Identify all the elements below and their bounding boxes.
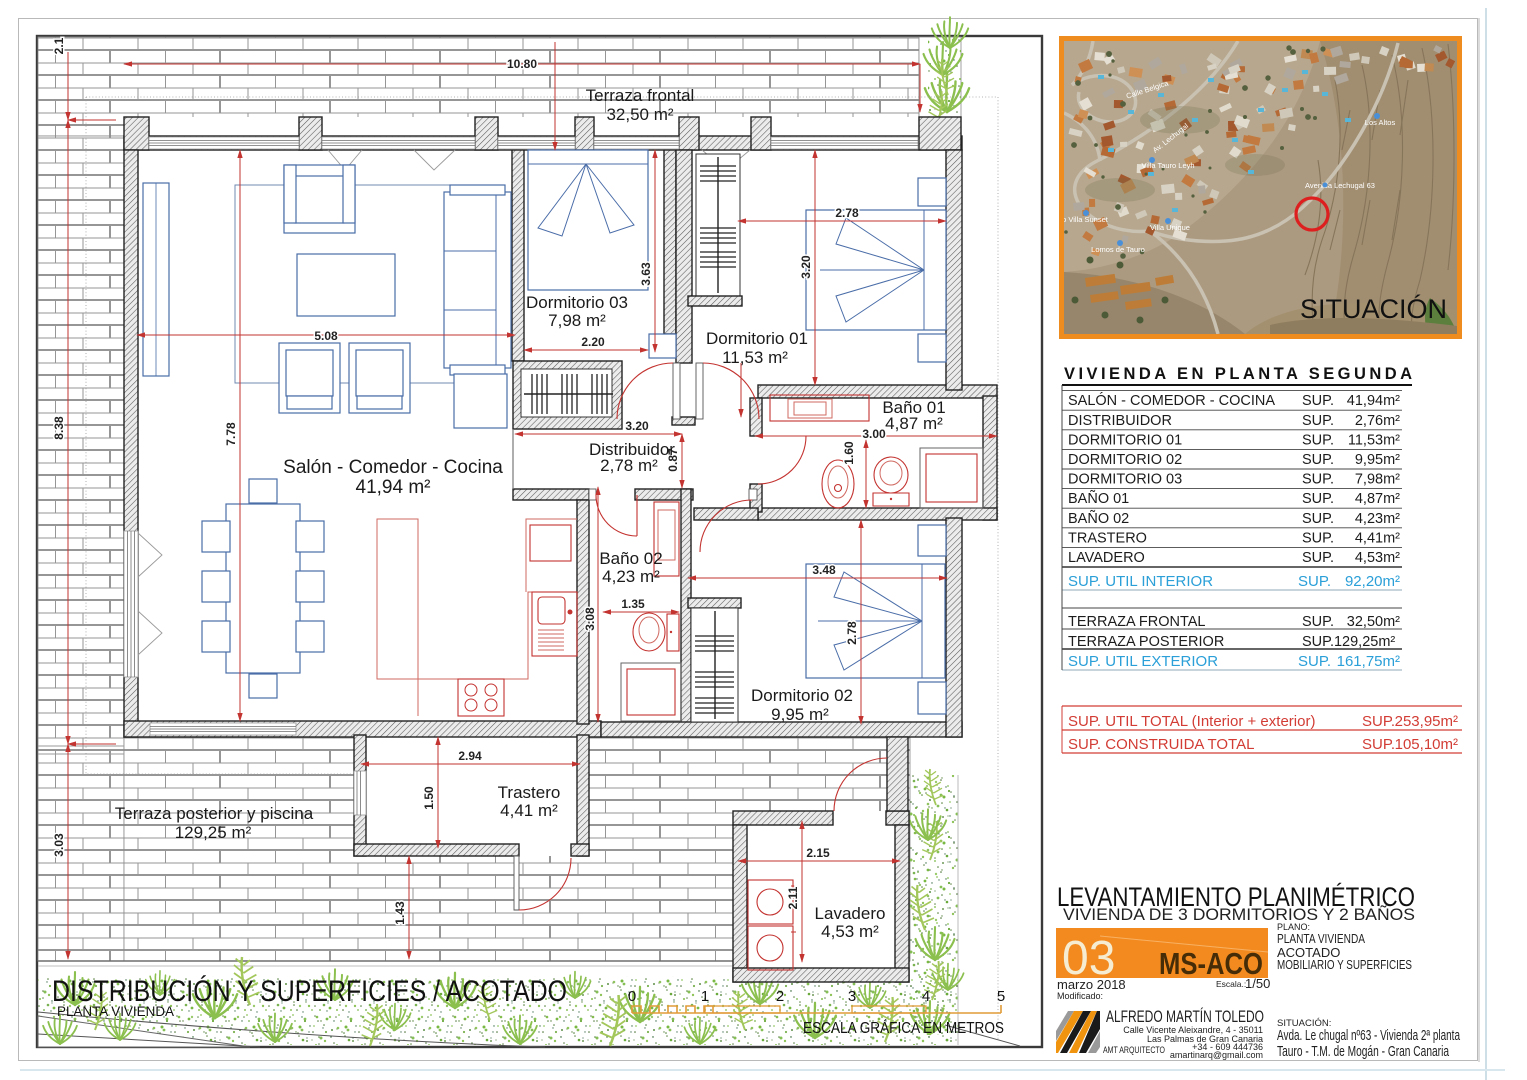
svg-text:SUP.: SUP. [1302,432,1334,448]
svg-text:129,25 m²: 129,25 m² [175,823,252,842]
svg-text:SUP.: SUP. [1302,614,1334,630]
svg-text:Escala.:: Escala.: [1216,979,1246,989]
svg-text:1.60: 1.60 [842,441,856,465]
svg-text:Salón - Comedor - Cocina: Salón - Comedor - Cocina [283,457,503,478]
svg-text:11,53 m²: 11,53 m² [722,348,788,367]
svg-text:4,53 m²: 4,53 m² [821,922,879,941]
svg-text:Avda. Le chugal nº63 - Viviend: Avda. Le chugal nº63 - Vivienda 2ª plant… [1277,1028,1461,1044]
svg-text:LAVADERO: LAVADERO [1068,550,1145,566]
svg-text:SUP.: SUP. [1302,472,1334,488]
svg-text:Dormitorio 03: Dormitorio 03 [526,293,628,312]
svg-text:Lavadero: Lavadero [815,904,886,923]
svg-text:SUP. UTIL INTERIOR: SUP. UTIL INTERIOR [1068,573,1213,590]
svg-text:2,78 m²: 2,78 m² [600,456,658,475]
svg-text:8.38: 8.38 [52,416,66,440]
svg-text:VIVIENDA EN PLANTA SEGUNDA: VIVIENDA EN PLANTA SEGUNDA [1064,365,1412,383]
svg-text:Modificado:: Modificado: [1057,991,1103,1001]
svg-text:Trastero: Trastero [498,783,561,802]
svg-text:2.78: 2.78 [835,206,859,220]
svg-text:Terraza frontal: Terraza frontal [586,86,695,105]
svg-text:SUP. UTIL TOTAL (Interior + e: SUP. UTIL TOTAL (Interior + exterior) [1068,713,1315,730]
svg-text:2.20: 2.20 [581,335,605,349]
svg-text:Avenida Lechugal 63: Avenida Lechugal 63 [1305,181,1375,190]
svg-text:32,50m²: 32,50m² [1347,614,1400,630]
svg-text:SUP.: SUP. [1362,713,1395,730]
svg-text:3.20: 3.20 [799,255,813,279]
svg-text:SUP.: SUP. [1302,511,1334,527]
svg-text:Terraza posterior y piscina: Terraza posterior y piscina [115,804,314,823]
svg-text:Villa Tauro Leyh: Villa Tauro Leyh [1141,161,1194,170]
svg-text:9,95 m²: 9,95 m² [771,705,829,724]
svg-text:0: 0 [628,988,636,1005]
svg-text:PLANTA VIVIENDA: PLANTA VIVIENDA [1277,931,1365,946]
svg-text:SUP.129,25m²: SUP.129,25m² [1302,634,1395,650]
svg-text:41,94m²: 41,94m² [1347,393,1400,409]
svg-text:4: 4 [922,988,930,1005]
svg-text:AMT ARQUITECTO: AMT ARQUITECTO [1103,1045,1165,1056]
svg-text:7,98m²: 7,98m² [1355,472,1400,488]
svg-text:SUP.: SUP. [1298,653,1331,670]
svg-text:2,76m²: 2,76m² [1355,413,1400,429]
svg-text:BAÑO 01: BAÑO 01 [1068,490,1129,507]
svg-text:32,50 m²: 32,50 m² [606,105,673,124]
svg-text:Dormitorio 01: Dormitorio 01 [706,329,808,348]
svg-text:SUP.: SUP. [1302,550,1334,566]
svg-text:2.94: 2.94 [458,749,482,763]
svg-text:253,95m²: 253,95m² [1395,713,1458,730]
svg-text:DORMITORIO 02: DORMITORIO 02 [1068,452,1182,468]
svg-text:SUP.: SUP. [1302,491,1334,507]
svg-text:10.80: 10.80 [507,57,537,71]
svg-text:SUP. CONSTRUIDA TOTAL: SUP. CONSTRUIDA TOTAL [1068,736,1254,753]
svg-text:5: 5 [997,988,1005,1005]
svg-text:PLANTA VIVIENDA: PLANTA VIVIENDA [57,1003,175,1019]
svg-text:Dormitorio 02: Dormitorio 02 [751,686,853,705]
svg-text:2: 2 [776,988,784,1005]
svg-text:105,10m²: 105,10m² [1395,736,1458,753]
svg-text:TERRAZA POSTERIOR: TERRAZA POSTERIOR [1068,634,1224,650]
svg-text:amartinarq@gmail.com: amartinarq@gmail.com [1170,1050,1263,1060]
svg-text:marzo 2018: marzo 2018 [1057,977,1126,992]
svg-text:4,23m²: 4,23m² [1355,511,1400,527]
svg-text:DORMITORIO 01: DORMITORIO 01 [1068,432,1182,448]
svg-text:SUP.: SUP. [1298,573,1331,590]
svg-text:3: 3 [848,988,856,1005]
svg-text:Villa Unique: Villa Unique [1150,223,1190,232]
svg-text:TRASTERO: TRASTERO [1068,530,1147,546]
svg-text:92,20m²: 92,20m² [1345,573,1400,590]
svg-text:Baño 02: Baño 02 [599,549,662,568]
svg-text:2.1: 2.1 [52,37,66,54]
svg-text:SUP.: SUP. [1302,393,1334,409]
svg-text:SUP.: SUP. [1302,452,1334,468]
svg-text:4,53m²: 4,53m² [1355,550,1400,566]
svg-text:4,41m²: 4,41m² [1355,530,1400,546]
svg-text:2.78: 2.78 [845,621,859,645]
svg-text:7.78: 7.78 [224,422,238,446]
svg-text:4,87 m²: 4,87 m² [885,414,943,433]
svg-text:o Villa Sunset: o Villa Sunset [1062,215,1109,224]
svg-text:1/50: 1/50 [1245,976,1270,991]
svg-text:SUP. UTIL EXTERIOR: SUP. UTIL EXTERIOR [1068,653,1218,670]
svg-text:SUP.: SUP. [1362,736,1395,753]
svg-text:11,53m²: 11,53m² [1348,432,1400,448]
svg-text:3.00: 3.00 [862,427,886,441]
svg-text:TERRAZA FRONTAL: TERRAZA FRONTAL [1068,614,1206,630]
svg-text:2.15: 2.15 [806,846,830,860]
svg-text:4,87m²: 4,87m² [1355,491,1400,507]
svg-text:4,23 m²: 4,23 m² [602,567,660,586]
svg-text:1.35: 1.35 [621,597,645,611]
svg-text:1.43: 1.43 [393,901,407,925]
svg-text:5.08: 5.08 [314,329,338,343]
svg-text:Los Altos: Los Altos [1365,118,1396,127]
svg-text:7,98 m²: 7,98 m² [548,311,606,330]
svg-text:BAÑO 02: BAÑO 02 [1068,510,1129,527]
svg-text:VIVIENDA DE 3 DORMITORIOS Y 2: VIVIENDA DE 3 DORMITORIOS Y 2 BAÑOS [1063,905,1415,924]
svg-text:SUP.: SUP. [1302,530,1334,546]
svg-text:2.11: 2.11 [786,886,800,909]
svg-text:3.03: 3.03 [52,833,66,857]
svg-text:4,41 m²: 4,41 m² [500,801,558,820]
svg-text:SUP.: SUP. [1302,413,1334,429]
svg-text:SITUACIÓN: SITUACIÓN [1300,293,1447,324]
svg-text:9,95m²: 9,95m² [1355,452,1400,468]
svg-text:3.08: 3.08 [583,607,597,631]
svg-text:3.48: 3.48 [812,563,836,577]
svg-text:3.63: 3.63 [639,262,653,286]
svg-text:3.20: 3.20 [625,419,649,433]
svg-text:ALFREDO MARTÍN TOLEDO: ALFREDO MARTÍN TOLEDO [1106,1007,1264,1026]
svg-text:ESCALA GRÁFICA EN METROS: ESCALA GRÁFICA EN METROS [803,1018,1004,1037]
svg-text:SALÓN - COMEDOR - COCINA: SALÓN - COMEDOR - COCINA [1068,392,1275,409]
svg-text:Tauro - T.M. de Mogán - Gran C: Tauro - T.M. de Mogán - Gran Canaria [1277,1044,1450,1060]
svg-text:Lomos de Tauro: Lomos de Tauro [1091,245,1145,254]
svg-text:1: 1 [701,988,709,1005]
svg-text:41,94 m²: 41,94 m² [356,477,431,498]
svg-text:1.50: 1.50 [422,786,436,810]
svg-text:DORMITORIO 03: DORMITORIO 03 [1068,472,1182,488]
svg-text:DISTRIBUIDOR: DISTRIBUIDOR [1068,413,1172,429]
svg-text:MOBILIARIO Y SUPERFICIES: MOBILIARIO Y SUPERFICIES [1277,957,1412,972]
svg-text:161,75m²: 161,75m² [1337,653,1400,670]
